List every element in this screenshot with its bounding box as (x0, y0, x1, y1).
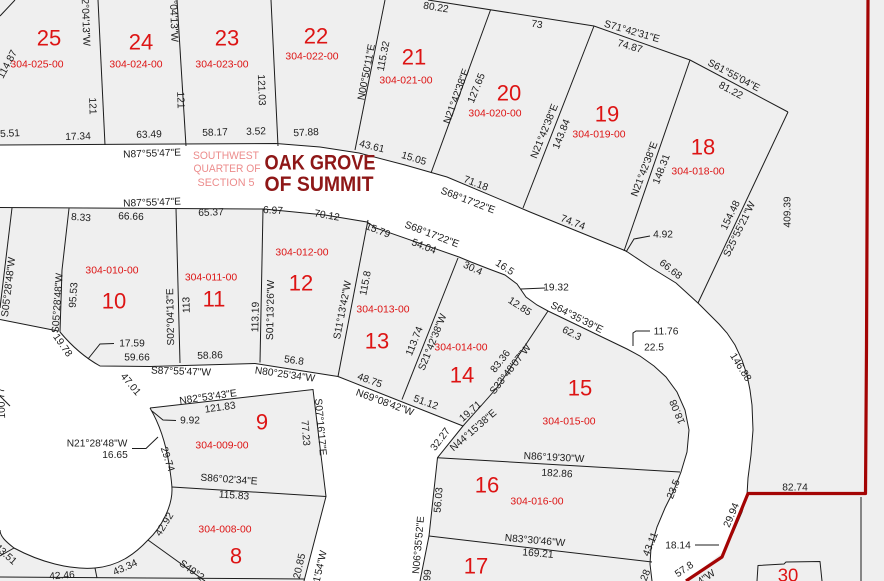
svg-text:14: 14 (450, 363, 474, 388)
svg-text:304-015-00: 304-015-00 (542, 417, 595, 428)
svg-text:304-020-00: 304-020-00 (468, 109, 521, 120)
svg-text:SOUTHWEST: SOUTHWEST (193, 150, 259, 162)
svg-text:4.92: 4.92 (653, 230, 673, 241)
svg-text:304-014-00: 304-014-00 (434, 343, 487, 354)
svg-text:304-011-00: 304-011-00 (185, 273, 238, 284)
svg-text:21: 21 (402, 45, 426, 70)
svg-text:S02°04'13"W: S02°04'13"W (166, 0, 179, 43)
svg-text:59.66: 59.66 (124, 353, 150, 364)
svg-text:409.39: 409.39 (783, 196, 794, 227)
svg-text:15: 15 (568, 376, 592, 401)
svg-text:113: 113 (181, 296, 192, 313)
svg-text:20: 20 (497, 81, 521, 106)
svg-text:121.03: 121.03 (255, 74, 267, 106)
svg-text:304-022-00: 304-022-00 (285, 52, 338, 63)
svg-text:11.76: 11.76 (654, 327, 679, 338)
svg-text:9.92: 9.92 (180, 416, 200, 427)
svg-text:11: 11 (203, 287, 226, 312)
svg-text:115.83: 115.83 (218, 490, 249, 503)
svg-text:13: 13 (365, 329, 389, 354)
svg-text:N21°28'48"W: N21°28'48"W (67, 439, 128, 450)
svg-text:304-019-00: 304-019-00 (572, 130, 625, 141)
svg-text:S02°04'13"E: S02°04'13"E (165, 288, 177, 346)
svg-text:18.14: 18.14 (665, 541, 691, 552)
svg-text:6.97: 6.97 (263, 205, 284, 217)
svg-text:57.88: 57.88 (293, 127, 319, 139)
svg-text:12: 12 (289, 271, 313, 296)
svg-text:66.66: 66.66 (118, 211, 144, 223)
svg-text:304-009-00: 304-009-00 (195, 441, 248, 452)
svg-text:58.17: 58.17 (202, 127, 228, 139)
svg-text:17: 17 (464, 554, 488, 579)
svg-text:18: 18 (691, 135, 715, 160)
svg-text:24: 24 (129, 30, 153, 55)
svg-text:42.46: 42.46 (49, 570, 76, 581)
svg-text:65.37: 65.37 (198, 207, 224, 219)
svg-text:17.34: 17.34 (65, 131, 91, 143)
svg-text:8.33: 8.33 (71, 212, 92, 224)
svg-text:58.86: 58.86 (197, 350, 223, 362)
svg-text:82.74: 82.74 (782, 483, 808, 494)
svg-text:QUARTER OF: QUARTER OF (194, 163, 261, 175)
svg-text:77.23: 77.23 (298, 420, 311, 447)
svg-text:121: 121 (86, 97, 98, 115)
svg-text:22.5: 22.5 (644, 343, 664, 354)
svg-text:19.32: 19.32 (543, 283, 569, 294)
svg-text:73: 73 (530, 19, 543, 32)
svg-text:304-012-00: 304-012-00 (275, 248, 328, 259)
svg-text:304-021-00: 304-021-00 (379, 76, 432, 87)
svg-text:304-018-00: 304-018-00 (671, 167, 724, 178)
svg-text:SECTION 5: SECTION 5 (198, 177, 255, 189)
svg-text:95.53: 95.53 (68, 282, 81, 309)
svg-text:304-023-00: 304-023-00 (195, 60, 248, 71)
svg-text:9: 9 (256, 410, 268, 435)
svg-text:304-013-00: 304-013-00 (356, 305, 409, 316)
svg-text:OF SUMMIT: OF SUMMIT (265, 172, 374, 196)
svg-text:16: 16 (475, 473, 499, 498)
svg-text:23: 23 (215, 26, 239, 51)
svg-text:19: 19 (595, 102, 619, 127)
svg-text:8: 8 (230, 544, 242, 569)
svg-text:99: 99 (422, 569, 434, 581)
svg-text:16.65: 16.65 (102, 450, 128, 461)
svg-text:S01°13'26"W: S01°13'26"W (265, 280, 277, 341)
svg-text:5.51: 5.51 (0, 128, 21, 140)
svg-text:N87°55'47"E: N87°55'47"E (123, 197, 181, 210)
svg-text:304-010-00: 304-010-00 (85, 266, 138, 277)
svg-text:30: 30 (778, 564, 799, 581)
svg-text:113.19: 113.19 (250, 301, 262, 332)
svg-text:22: 22 (304, 24, 328, 49)
svg-text:S02°04'13"W: S02°04'13"W (78, 0, 91, 47)
svg-text:OAK GROVE: OAK GROVE (265, 151, 376, 175)
svg-text:304-024-00: 304-024-00 (109, 60, 162, 71)
svg-text:S87°55'47"W: S87°55'47"W (151, 366, 212, 379)
svg-text:17.59: 17.59 (119, 339, 145, 350)
svg-text:10: 10 (102, 289, 126, 314)
svg-text:3.52: 3.52 (246, 126, 267, 138)
svg-text:304-025-00: 304-025-00 (10, 60, 63, 71)
svg-text:56.03: 56.03 (432, 487, 445, 514)
svg-text:121: 121 (174, 91, 186, 109)
svg-text:100.77: 100.77 (0, 387, 8, 419)
svg-text:N87°55'47"E: N87°55'47"E (123, 148, 181, 161)
svg-text:25: 25 (37, 26, 61, 51)
svg-text:304-008-00: 304-008-00 (198, 525, 251, 536)
svg-text:63.49: 63.49 (136, 129, 162, 141)
svg-text:182.86: 182.86 (541, 468, 573, 481)
svg-text:304-016-00: 304-016-00 (510, 497, 563, 508)
